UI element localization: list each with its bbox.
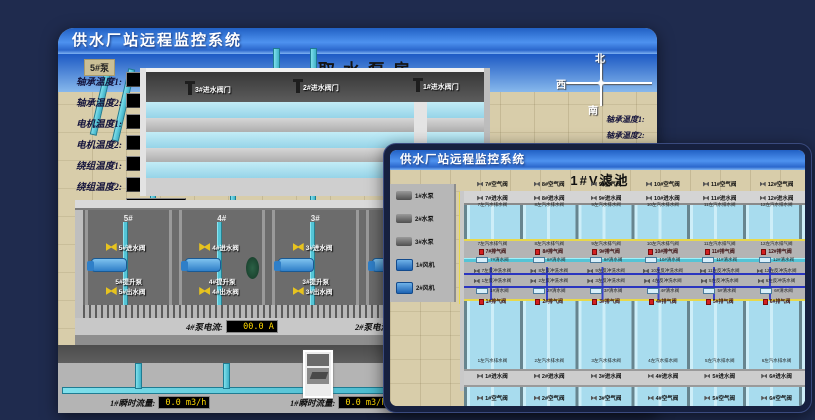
clean-water-tank-icon bbox=[590, 257, 602, 263]
exhaust-valve-label: 2#排气阀 bbox=[542, 298, 563, 305]
exhaust-valve-icon bbox=[535, 299, 540, 305]
clean-water-valve[interactable]: 1#清水阀 bbox=[464, 288, 521, 294]
valve-icon bbox=[703, 196, 709, 201]
inlet-valve-label: 11#进水阀 bbox=[711, 194, 736, 202]
valve-icon bbox=[587, 279, 593, 284]
clean-water-valve-label: 9#清水阀 bbox=[604, 257, 623, 263]
equipment-label: 1#水泵 bbox=[415, 191, 434, 200]
clean-water-valve[interactable]: 11#清水阀 bbox=[691, 257, 748, 263]
exhaust-valve-label: 10#排气阀 bbox=[655, 248, 678, 255]
drain-valve-label: 7左汽水排水阀 bbox=[478, 202, 508, 208]
exhaust-valve-icon bbox=[592, 249, 597, 255]
drain-valve[interactable]: 10左汽水排水阀 bbox=[634, 202, 691, 208]
exhaust-valve-icon bbox=[592, 299, 597, 305]
air-valve-label: 8#空气阀 bbox=[542, 180, 565, 188]
filter-cell-bottom: 3左反冲洗水阀 3#清水阀 3#排气阀 3左汽水排水阀 bbox=[578, 270, 635, 406]
valve-icon bbox=[758, 279, 764, 284]
bottom-filter-cells: 1左反冲洗水阀 1#清水阀 1#排气阀 1左汽水排水阀 bbox=[464, 270, 805, 406]
inlet-valve-label: 5#进水阀 bbox=[119, 242, 146, 252]
filter-cell-bottom: 4左反冲洗水阀 4#清水阀 4#排气阀 4左汽水排水阀 bbox=[634, 270, 691, 406]
clean-water-valve-label: 12#清水阀 bbox=[773, 257, 794, 263]
sensor-label: 轴承温度2: bbox=[60, 95, 122, 109]
gate-valve-icon bbox=[416, 81, 420, 92]
outlet-valve-label: 3#出水阀 bbox=[306, 286, 333, 296]
vent-valve-label: 11左汽水排气阀 bbox=[704, 241, 736, 247]
air-valve-label: 2#空气阀 bbox=[542, 394, 565, 402]
valve-icon bbox=[591, 374, 597, 379]
lift-pump[interactable] bbox=[91, 258, 127, 272]
exhaust-valve-icon bbox=[706, 299, 711, 305]
flowmeter-unit[interactable] bbox=[303, 350, 333, 398]
air-valve-label: 4#空气阀 bbox=[656, 394, 679, 402]
inlet-gate-valve[interactable]: 3#进水阀门 bbox=[188, 84, 231, 95]
vent-valve[interactable]: 12左汽水排气阀 bbox=[748, 241, 805, 247]
valve-icon bbox=[648, 396, 654, 401]
butterfly-valve-icon bbox=[199, 287, 210, 295]
valve-icon bbox=[591, 396, 597, 401]
butterfly-valve-icon bbox=[199, 243, 210, 251]
backwash-valve-label: 6左反冲洗水阀 bbox=[766, 278, 796, 284]
butterfly-valve-icon bbox=[293, 243, 304, 251]
backwash-valve[interactable]: 4左反冲洗水阀 bbox=[634, 278, 691, 284]
equipment-label: 2#风机 bbox=[416, 283, 435, 292]
exhaust-valve-label: 8#排气阀 bbox=[542, 248, 563, 255]
vent-valve[interactable]: 9左汽水排气阀 bbox=[578, 241, 635, 247]
outlet-valve[interactable]: 5#出水阀 bbox=[106, 286, 146, 296]
valve-icon bbox=[474, 279, 480, 284]
clean-water-valve[interactable]: 8#清水阀 bbox=[521, 257, 578, 263]
inlet-valve-label: 2#进水阀 bbox=[542, 372, 565, 380]
valve-icon bbox=[703, 182, 709, 187]
air-valve[interactable]: 11#空气阀 bbox=[691, 180, 748, 188]
vent-valve-label: 10左汽水排气阀 bbox=[647, 241, 679, 247]
lift-pump-label-row: 3#提升泵 bbox=[302, 276, 329, 286]
exhaust-valve[interactable]: 6#排气阀 bbox=[748, 298, 805, 305]
inlet-valve-label: 6#进水阀 bbox=[769, 372, 792, 380]
inlet-valve[interactable]: 2#进水阀 bbox=[521, 372, 578, 380]
drain-valve[interactable]: 8左汽水排水阀 bbox=[521, 202, 578, 208]
inlet-valve-label: 4#进水阀 bbox=[656, 372, 679, 380]
air-valve[interactable]: 4#空气阀 bbox=[634, 394, 691, 402]
butterfly-valve-icon bbox=[106, 243, 117, 251]
valve-icon bbox=[704, 396, 710, 401]
exhaust-valve-label: 12#排气阀 bbox=[768, 248, 791, 255]
filter-cell-bottom: 1左反冲洗水阀 1#清水阀 1#排气阀 1左汽水排水阀 bbox=[464, 270, 521, 406]
inlet-valve[interactable]: 8#进水阀 bbox=[521, 194, 578, 202]
compass-west-label: 西 bbox=[556, 76, 566, 91]
gate-valve-icon bbox=[296, 82, 300, 93]
exhaust-valve-label: 9#排气阀 bbox=[599, 248, 620, 255]
clean-water-valve[interactable]: 5#清水阀 bbox=[691, 288, 748, 294]
exhaust-valve-label: 7#排气阀 bbox=[486, 248, 507, 255]
filter-scene: 1#V滤池 1#水泵 2#水泵 3#水泵 1#风机 bbox=[390, 170, 805, 406]
flow-rate-label: 1#瞬时流量: bbox=[110, 397, 155, 409]
valve-icon bbox=[477, 182, 483, 187]
front-window-titlebar[interactable]: 供水厂站远程监控系统 bbox=[390, 150, 805, 170]
drain-valve-label: 10左汽水排水阀 bbox=[647, 202, 679, 208]
lift-pump[interactable] bbox=[185, 258, 221, 272]
vent-valve-label: 7左汽水排气阀 bbox=[478, 241, 508, 247]
pump-bay: 3# 3#进水阀 3#提升泵 bbox=[272, 210, 359, 305]
drain-valve[interactable]: 4左汽水排水阀 bbox=[634, 358, 691, 364]
valve-icon bbox=[646, 182, 652, 187]
exhaust-valve[interactable]: 12#排气阀 bbox=[748, 248, 805, 255]
inlet-valve-label: 12#进水阀 bbox=[768, 194, 794, 202]
equipment-object bbox=[246, 257, 259, 279]
vent-valve-label: 9左汽水排气阀 bbox=[591, 241, 621, 247]
air-valve-label: 10#空气阀 bbox=[654, 180, 680, 188]
inlet-valve-label: 10#进水阀 bbox=[654, 194, 680, 202]
valve-icon bbox=[477, 396, 483, 401]
clean-water-valve-label: 11#清水阀 bbox=[716, 257, 737, 263]
flow-rate-display: 0.0 m3/h bbox=[158, 396, 210, 409]
valve-icon bbox=[704, 374, 710, 379]
drain-valve[interactable]: 5左汽水排水阀 bbox=[691, 358, 748, 364]
front-window-title: 供水厂站远程监控系统 bbox=[400, 154, 525, 166]
backwash-valve[interactable]: 6左反冲洗水阀 bbox=[748, 278, 805, 284]
air-valve[interactable]: 9#空气阀 bbox=[578, 180, 635, 188]
butterfly-valve-icon bbox=[293, 287, 304, 295]
drain-valve[interactable]: 12左汽水排水阀 bbox=[748, 202, 805, 208]
inlet-valve-label: 3#进水阀门 bbox=[195, 85, 231, 95]
valve-icon bbox=[534, 182, 540, 187]
exhaust-valve[interactable]: 7#排气阀 bbox=[464, 248, 521, 255]
clean-water-tank-icon bbox=[590, 288, 602, 294]
valve-icon bbox=[761, 374, 767, 379]
drain-valve[interactable]: 2左汽水排水阀 bbox=[521, 358, 578, 364]
valve-icon bbox=[534, 196, 540, 201]
lift-pump-label-row: 5#提升泵 bbox=[115, 276, 142, 286]
exhaust-valve[interactable]: 5#排气阀 bbox=[691, 298, 748, 305]
drain-valve[interactable]: 9左汽水排水阀 bbox=[578, 202, 635, 208]
lift-pump-label: 3#提升泵 bbox=[302, 276, 329, 286]
air-valve[interactable]: 8#空气阀 bbox=[521, 180, 578, 188]
sensor-label: 轴承温度2: bbox=[606, 130, 657, 141]
exhaust-valve[interactable]: 3#排气阀 bbox=[578, 298, 635, 305]
drain-valve-label: 4左汽水排水阀 bbox=[648, 358, 678, 364]
drain-valve-label: 9左汽水排水阀 bbox=[591, 202, 621, 208]
air-valve[interactable]: 2#空气阀 bbox=[521, 394, 578, 402]
outlet-valve[interactable]: 4#出水阀 bbox=[199, 286, 239, 296]
valve-icon bbox=[646, 196, 652, 201]
clean-water-tank-icon bbox=[645, 257, 657, 263]
inlet-valve-label: 4#进水阀 bbox=[212, 242, 239, 252]
drain-valve[interactable]: 3左汽水排水阀 bbox=[578, 358, 635, 364]
equipment-platform: 1#水泵 2#水泵 3#水泵 1#风机 2#风机 bbox=[390, 184, 456, 302]
equipment-item[interactable]: 2#风机 bbox=[390, 276, 454, 299]
drain-valve-label: 1左汽水排水阀 bbox=[478, 358, 508, 364]
drain-valve[interactable]: 6左汽水排水阀 bbox=[748, 358, 805, 364]
clean-water-valve-label: 4#清水阀 bbox=[661, 288, 680, 294]
valve-icon bbox=[591, 182, 597, 187]
clean-water-tank-icon bbox=[533, 288, 545, 294]
inlet-valve[interactable]: 12#进水阀 bbox=[748, 194, 805, 202]
clean-water-tank-icon bbox=[533, 257, 545, 263]
equipment-label: 2#水泵 bbox=[415, 214, 434, 223]
valve-icon bbox=[701, 279, 707, 284]
clean-water-valve-label: 1#清水阀 bbox=[490, 288, 509, 294]
sensor-label: 绕组温度1: bbox=[60, 158, 122, 172]
inlet-valve-label: 1#进水阀门 bbox=[423, 82, 459, 92]
valve-icon bbox=[760, 182, 766, 187]
inlet-valve[interactable]: 3#进水阀 bbox=[578, 372, 635, 380]
filter-cell-bottom: 6左反冲洗水阀 6#清水阀 6#排气阀 6左汽水排水阀 bbox=[748, 270, 805, 406]
air-valve[interactable]: 12#空气阀 bbox=[748, 180, 805, 188]
clean-water-valve-label: 10#清水阀 bbox=[659, 257, 680, 263]
backwash-valve-label: 4左反冲洗水阀 bbox=[652, 278, 682, 284]
pump-current-label: 4#泵电流: bbox=[186, 321, 223, 333]
clean-water-tank-icon bbox=[760, 288, 772, 294]
flow-rate: 1#瞬时流量: 0.0 m3/h bbox=[110, 396, 210, 409]
exhaust-valve[interactable]: 8#排气阀 bbox=[521, 248, 578, 255]
outlet-valve[interactable]: 3#出水阀 bbox=[293, 286, 333, 296]
exhaust-valve-icon bbox=[479, 299, 484, 305]
exhaust-valve[interactable]: 11#排气阀 bbox=[691, 248, 748, 255]
air-valve-label: 3#空气阀 bbox=[599, 394, 622, 402]
inlet-valve[interactable]: 5#进水阀 bbox=[691, 372, 748, 380]
inlet-valve[interactable]: 3#进水阀 bbox=[293, 242, 333, 252]
back-window-title: 供水厂站远程监控系统 bbox=[72, 32, 242, 49]
gate-valve-icon bbox=[188, 84, 192, 95]
lift-pump-label: 4#提升泵 bbox=[209, 276, 236, 286]
clean-water-valve-label: 5#清水阀 bbox=[717, 288, 736, 294]
exhaust-valve-icon bbox=[763, 299, 768, 305]
exhaust-valve-icon bbox=[479, 249, 484, 255]
clean-water-valve-label: 8#清水阀 bbox=[547, 257, 566, 263]
exhaust-valve[interactable]: 9#排气阀 bbox=[578, 248, 635, 255]
inlet-valve[interactable]: 9#进水阀 bbox=[578, 194, 635, 202]
clean-water-valve[interactable]: 9#清水阀 bbox=[578, 257, 635, 263]
inlet-valve-label: 3#进水阀 bbox=[306, 242, 333, 252]
flow-rate: 1#瞬时流量: 0.0 m3/h bbox=[290, 396, 390, 409]
air-valve-label: 7#空气阀 bbox=[485, 180, 508, 188]
clean-water-tank-icon bbox=[703, 288, 715, 294]
vent-valve[interactable]: 11左汽水排气阀 bbox=[691, 241, 748, 247]
air-valve[interactable]: 6#空气阀 bbox=[748, 394, 805, 402]
clean-water-valve[interactable]: 3#清水阀 bbox=[578, 288, 635, 294]
exhaust-valve-label: 11#排气阀 bbox=[712, 248, 735, 255]
lift-pump-label: 5#提升泵 bbox=[115, 276, 142, 286]
inlet-valve[interactable]: 5#进水阀 bbox=[106, 242, 146, 252]
equipment-item[interactable]: 1#风机 bbox=[390, 253, 454, 276]
exhaust-valve-icon bbox=[649, 299, 654, 305]
equipment-label: 3#水泵 bbox=[415, 237, 434, 246]
inlet-valve[interactable]: 7#进水阀 bbox=[464, 194, 521, 202]
vent-valve[interactable]: 7左汽水排气阀 bbox=[464, 241, 521, 247]
outlet-valve-label: 4#出水阀 bbox=[212, 286, 239, 296]
clean-water-tank-icon bbox=[476, 257, 488, 263]
exhaust-valve-label: 3#排气阀 bbox=[599, 298, 620, 305]
pump-icon bbox=[91, 258, 127, 272]
lift-pump[interactable] bbox=[278, 258, 314, 272]
drain-valve-label: 12左汽水排水阀 bbox=[761, 202, 793, 208]
backwash-valve[interactable]: 1左反冲洗水阀 bbox=[464, 278, 521, 284]
inlet-gate-valve[interactable]: 1#进水阀门 bbox=[416, 81, 459, 92]
backwash-valve-label: 2左反冲洗水阀 bbox=[538, 278, 568, 284]
clean-water-valve[interactable]: 12#清水阀 bbox=[748, 257, 805, 263]
pump-icon bbox=[278, 258, 314, 272]
vent-valve-label: 12左汽水排气阀 bbox=[761, 241, 793, 247]
compass-north-label: 北 bbox=[595, 50, 605, 65]
flowmeter-display bbox=[307, 354, 329, 366]
drain-valve-label: 5左汽水排水阀 bbox=[705, 358, 735, 364]
backwash-valve-label: 5左反冲洗水阀 bbox=[709, 278, 739, 284]
equipment-item[interactable]: 1#水泵 bbox=[390, 184, 454, 207]
drain-valve[interactable]: 1左汽水排水阀 bbox=[464, 358, 521, 364]
drain-valve-label: 2左汽水排水阀 bbox=[534, 358, 564, 364]
equipment-item[interactable]: 3#水泵 bbox=[390, 230, 454, 253]
clean-water-tank-icon bbox=[476, 288, 488, 294]
air-valve-label: 5#空气阀 bbox=[712, 394, 735, 402]
drain-valve[interactable]: 7左汽水排水阀 bbox=[464, 202, 521, 208]
filter-window-inner: 供水厂站远程监控系统 1#V滤池 1#水泵 2#水泵 3#水泵 bbox=[390, 150, 805, 406]
machine-icon bbox=[396, 191, 412, 200]
inlet-valve-label: 2#进水阀门 bbox=[303, 83, 339, 93]
exhaust-valve-label: 1#排气阀 bbox=[486, 298, 507, 305]
clean-water-valve-label: 7#清水阀 bbox=[490, 257, 509, 263]
backwash-valve[interactable]: 3左反冲洗水阀 bbox=[578, 278, 635, 284]
sensor-label: 电机温度1: bbox=[60, 116, 122, 130]
exhaust-valve[interactable]: 1#排气阀 bbox=[464, 298, 521, 305]
filter-cell-bottom: 5左反冲洗水阀 5#清水阀 5#排气阀 5左汽水排水阀 bbox=[691, 270, 748, 406]
reservoir-water-channel bbox=[146, 102, 484, 118]
sensor-label: 电机温度2: bbox=[60, 137, 122, 151]
clean-water-valve[interactable]: 2#清水阀 bbox=[521, 288, 578, 294]
filter-window: 供水厂站远程监控系统 1#V滤池 1#水泵 2#水泵 3#水泵 bbox=[383, 143, 812, 413]
air-valve[interactable]: 1#空气阀 bbox=[464, 394, 521, 402]
lift-pump-label-row: 4#提升泵 bbox=[209, 276, 236, 286]
clean-water-valve[interactable]: 10#清水阀 bbox=[634, 257, 691, 263]
equipment-item[interactable]: 2#水泵 bbox=[390, 207, 454, 230]
pump-bay: 5# 5#进水阀 5#提升泵 bbox=[85, 210, 172, 305]
machine-icon bbox=[396, 259, 413, 271]
exhaust-valve[interactable]: 4#排气阀 bbox=[634, 298, 691, 305]
compass-star-icon bbox=[594, 76, 608, 90]
valve-icon bbox=[591, 196, 597, 201]
air-valve[interactable]: 7#空气阀 bbox=[464, 180, 521, 188]
exhaust-valve-label: 6#排气阀 bbox=[770, 298, 791, 305]
vent-valve[interactable]: 10左汽水排气阀 bbox=[634, 241, 691, 247]
machine-icon bbox=[396, 237, 412, 246]
air-valve[interactable]: 10#空气阀 bbox=[634, 180, 691, 188]
vent-valve-label: 8左汽水排气阀 bbox=[534, 241, 564, 247]
inlet-valve[interactable]: 4#进水阀 bbox=[634, 372, 691, 380]
inlet-valve-label: 3#进水阀 bbox=[599, 372, 622, 380]
clean-water-valve-label: 3#清水阀 bbox=[604, 288, 623, 294]
flow-rate-label: 1#瞬时流量: bbox=[290, 397, 335, 409]
compass-ew-axis bbox=[566, 82, 652, 84]
air-valve-label: 6#空气阀 bbox=[769, 394, 792, 402]
drain-valve-label: 3左汽水排水阀 bbox=[591, 358, 621, 364]
air-valve[interactable]: 5#空气阀 bbox=[691, 394, 748, 402]
valve-icon bbox=[477, 196, 483, 201]
air-valve-label: 9#空气阀 bbox=[599, 180, 622, 188]
exhaust-valve[interactable]: 10#排气阀 bbox=[634, 248, 691, 255]
sensor-label: 绕组温度2: bbox=[60, 179, 122, 193]
air-valve-label: 11#空气阀 bbox=[711, 180, 736, 188]
filter-cell-bottom: 2左反冲洗水阀 2#清水阀 2#排气阀 2左汽水排水阀 bbox=[521, 270, 578, 406]
backwash-valve-label: 3左反冲洗水阀 bbox=[595, 278, 625, 284]
air-valve-label: 1#空气阀 bbox=[485, 394, 508, 402]
exhaust-valve-icon bbox=[648, 249, 653, 255]
inlet-valve-label: 9#进水阀 bbox=[599, 194, 622, 202]
inlet-valve-label: 8#进水阀 bbox=[542, 194, 565, 202]
inlet-valve[interactable]: 1#进水阀 bbox=[464, 372, 521, 380]
valve-icon bbox=[530, 279, 536, 284]
exhaust-valve-label: 4#排气阀 bbox=[656, 298, 677, 305]
outlet-valve-label: 5#出水阀 bbox=[119, 286, 146, 296]
machine-icon bbox=[396, 282, 413, 294]
drain-valve[interactable]: 11左汽水排水阀 bbox=[691, 202, 748, 208]
clean-water-valve-label: 2#清水阀 bbox=[547, 288, 566, 294]
valve-icon bbox=[477, 374, 483, 379]
clean-water-valve[interactable]: 7#清水阀 bbox=[464, 257, 521, 263]
exhaust-valve[interactable]: 2#排气阀 bbox=[521, 298, 578, 305]
valve-icon bbox=[644, 279, 650, 284]
backwash-valve[interactable]: 2左反冲洗水阀 bbox=[521, 278, 578, 284]
compass-rose: 北 西 南 bbox=[556, 54, 657, 116]
backwash-valve[interactable]: 5左反冲洗水阀 bbox=[691, 278, 748, 284]
inlet-valve[interactable]: 11#进水阀 bbox=[691, 194, 748, 202]
reservoir-beam bbox=[146, 118, 484, 132]
exhaust-valve-icon bbox=[705, 249, 710, 255]
clean-water-tank-icon bbox=[702, 257, 714, 263]
compass-south-label: 南 bbox=[588, 102, 598, 117]
valve-icon bbox=[534, 374, 540, 379]
clean-water-valve[interactable]: 4#清水阀 bbox=[634, 288, 691, 294]
desktop: 供水厂站远程监控系统 取水泵房 5#泵 轴承温度1: 100.0℃ 轴承温度2: bbox=[0, 0, 815, 420]
valve-icon bbox=[648, 374, 654, 379]
inlet-valve-label: 7#进水阀 bbox=[485, 194, 508, 202]
outlet-branch-pipe bbox=[223, 363, 230, 389]
valve-icon bbox=[761, 396, 767, 401]
valve-icon bbox=[534, 396, 540, 401]
flowmeter-body bbox=[307, 368, 329, 384]
inlet-valve-label: 1#进水阀 bbox=[485, 372, 508, 380]
equipment-label: 1#风机 bbox=[416, 260, 435, 269]
pump-current-display: 00.0 A bbox=[226, 320, 278, 333]
air-valve-label: 12#空气阀 bbox=[768, 180, 794, 188]
backwash-valve-label: 1左反冲洗水阀 bbox=[482, 278, 512, 284]
sensor-label: 轴承温度1: bbox=[60, 74, 122, 88]
clean-water-valve[interactable]: 6#清水阀 bbox=[748, 288, 805, 294]
inlet-valve-label: 5#进水阀 bbox=[712, 372, 735, 380]
inlet-valve[interactable]: 4#进水阀 bbox=[199, 242, 239, 252]
butterfly-valve-icon bbox=[106, 287, 117, 295]
outlet-branch-pipe bbox=[135, 363, 142, 389]
drain-valve-label: 8左汽水排水阀 bbox=[534, 202, 564, 208]
inlet-gate-valve[interactable]: 2#进水阀门 bbox=[296, 82, 339, 93]
air-valve[interactable]: 3#空气阀 bbox=[578, 394, 635, 402]
valve-icon bbox=[760, 196, 766, 201]
exhaust-valve-label: 5#排气阀 bbox=[713, 298, 734, 305]
inlet-valve[interactable]: 6#进水阀 bbox=[748, 372, 805, 380]
clean-water-valve-label: 6#清水阀 bbox=[774, 288, 793, 294]
machine-icon bbox=[396, 214, 412, 223]
vent-valve[interactable]: 8左汽水排气阀 bbox=[521, 241, 578, 247]
exhaust-valve-icon bbox=[535, 249, 540, 255]
inlet-valve[interactable]: 10#进水阀 bbox=[634, 194, 691, 202]
back-window-titlebar[interactable]: 供水厂站远程监控系统 bbox=[58, 28, 657, 54]
pump-icon bbox=[185, 258, 221, 272]
drain-valve-label: 6左汽水排水阀 bbox=[762, 358, 792, 364]
pump-current: 4#泵电流: 00.0 A bbox=[186, 320, 278, 333]
exhaust-valve-icon bbox=[761, 249, 766, 255]
sensor-label: 轴承温度1: bbox=[606, 114, 657, 125]
pump1-sensor-panel-fragment: 轴承温度1:轴承温度2: bbox=[606, 114, 657, 146]
drain-valve-label: 11左汽水排水阀 bbox=[704, 202, 736, 208]
clean-water-tank-icon bbox=[647, 288, 659, 294]
